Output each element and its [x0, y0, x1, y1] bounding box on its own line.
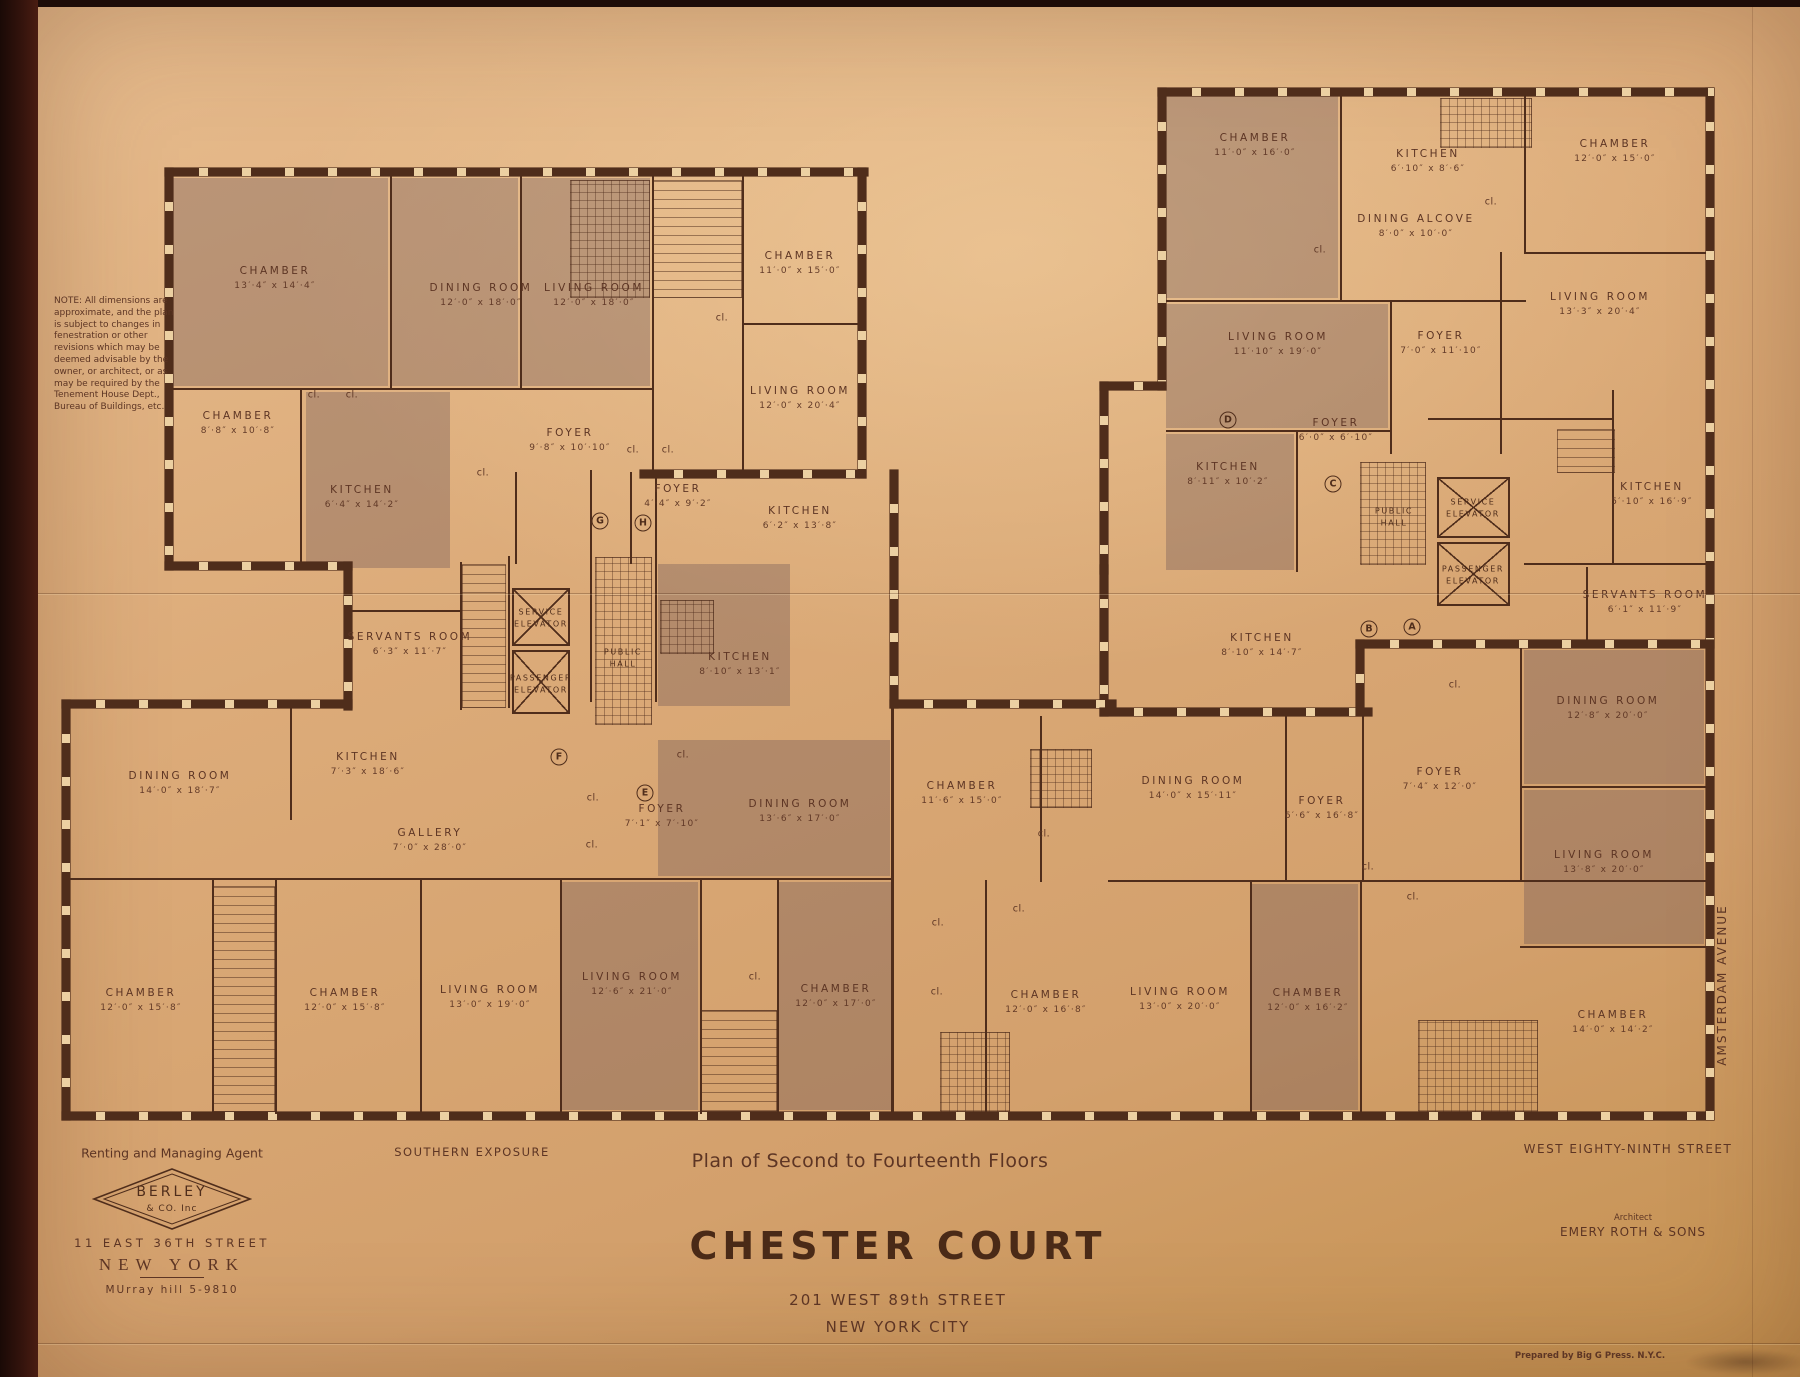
- stair-area: [1557, 429, 1615, 473]
- agent-address: 11 EAST 36TH STREET: [74, 1236, 270, 1250]
- exterior-wall: [62, 700, 70, 1120]
- interior-wall: [700, 878, 702, 1114]
- room-label: FOYER6′·6″ x 16′·8″: [1285, 795, 1359, 821]
- exterior-wall: [640, 470, 866, 478]
- room-label: DINING ALCOVE8′·0″ x 10′·0″: [1357, 213, 1475, 239]
- room-label: KITCHEN8′·11″ x 10′·2″: [1187, 461, 1268, 487]
- interior-wall: [1040, 716, 1042, 882]
- paper-smudge: [1686, 1349, 1800, 1375]
- stair-area: [652, 180, 742, 298]
- closet-label: cl.: [1314, 245, 1326, 256]
- tiled-area: [660, 600, 714, 654]
- agent-rule: [140, 1277, 204, 1278]
- closet-label: cl.: [1362, 862, 1374, 873]
- west-89th-street-label: WEST EIGHTY-NINTH STREET: [1524, 1142, 1733, 1156]
- berley-logo: BERLEY & CO. Inc: [92, 1168, 252, 1230]
- fold-crease: [1752, 7, 1753, 1377]
- interior-wall: [515, 472, 517, 564]
- room-label: SERVANTS ROOM6′·3″ x 11′·7″: [348, 631, 473, 657]
- fold-crease: [38, 593, 1800, 594]
- room-label: LIVING ROOM13′·8″ x 20′·0″: [1554, 849, 1654, 875]
- room-label: CHAMBER12′·0″ x 15′·8″: [304, 987, 385, 1013]
- room-label: LIVING ROOM12′·0″ x 20′·4″: [750, 385, 850, 411]
- core-label: PASSENGERELEVATOR: [510, 671, 572, 698]
- room-label: FOYER4′·4″ x 9′·2″: [644, 483, 711, 509]
- architect-heading: Architect: [1614, 1213, 1652, 1223]
- architect-name: EMERY ROTH & SONS: [1560, 1225, 1706, 1239]
- room-label: KITCHEN6′·2″ x 13′·8″: [763, 505, 837, 531]
- closet-label: cl.: [346, 390, 358, 401]
- agent-phone: MUrray hill 5-9810: [105, 1284, 238, 1296]
- room-label: KITCHEN8′·10″ x 13′·1″: [699, 651, 780, 677]
- interior-wall: [1524, 563, 1706, 565]
- stair-area: [700, 1010, 777, 1112]
- agent-city: NEW YORK: [99, 1255, 245, 1275]
- exterior-wall: [1100, 708, 1372, 716]
- interior-wall: [420, 878, 422, 1114]
- berley-logo-sub: & CO. Inc: [147, 1204, 198, 1214]
- unit-letter-badge: H: [635, 515, 652, 532]
- exterior-wall: [890, 470, 898, 708]
- unit-letter-badge: G: [592, 513, 609, 530]
- exterior-wall: [1356, 640, 1714, 648]
- room-label: KITCHEN7′·3″ x 18′·6″: [331, 751, 405, 777]
- room-label: LIVING ROOM12′·0″ x 18′·0″: [544, 282, 644, 308]
- building-city: NEW YORK CITY: [826, 1318, 971, 1336]
- closet-label: cl.: [931, 987, 943, 998]
- closet-label: cl.: [627, 445, 639, 456]
- core-label: PUBLICHALL: [604, 645, 642, 672]
- interior-wall: [1108, 880, 1714, 882]
- exterior-wall: [1100, 382, 1108, 574]
- core-label: SERVICEELEVATOR: [514, 605, 568, 632]
- closet-label: cl.: [1449, 680, 1461, 691]
- closet-label: cl.: [1485, 197, 1497, 208]
- interior-wall: [300, 390, 302, 564]
- closet-label: cl.: [1407, 892, 1419, 903]
- interior-wall: [1520, 946, 1714, 948]
- room-label: CHAMBER8′·8″ x 10′·8″: [201, 410, 275, 436]
- unit-letter-badge: F: [551, 749, 568, 766]
- interior-wall: [390, 176, 392, 388]
- room-label: LIVING ROOM13′·3″ x 20′·4″: [1550, 291, 1650, 317]
- room-label: CHAMBER11′·0″ x 15′·0″: [759, 250, 840, 276]
- shaded-room: [306, 392, 450, 568]
- agent-heading: Renting and Managing Agent: [81, 1146, 263, 1161]
- fold-crease: [38, 1343, 1800, 1344]
- shaded-room: [1166, 434, 1294, 570]
- interior-wall: [1524, 252, 1706, 254]
- interior-wall: [1520, 786, 1714, 788]
- room-label: FOYER6′·0″ x 6′·10″: [1299, 417, 1373, 443]
- exterior-wall: [1100, 382, 1166, 390]
- interior-wall: [1524, 96, 1526, 254]
- exterior-wall: [165, 168, 868, 176]
- exterior-wall: [890, 700, 1116, 708]
- interior-wall: [891, 708, 894, 1114]
- closet-label: cl.: [932, 918, 944, 929]
- exterior-wall: [1356, 640, 1364, 716]
- closet-label: cl.: [662, 445, 674, 456]
- scanned-floor-plan-photo: CHAMBER13′·4″ x 14′·4″DINING ROOM12′·0″ …: [0, 0, 1800, 1377]
- unit-letter-badge: B: [1361, 621, 1378, 638]
- room-label: DINING ROOM12′·0″ x 18′·0″: [430, 282, 533, 308]
- interior-wall: [985, 880, 987, 1114]
- room-label: CHAMBER14′·0″ x 14′·2″: [1572, 1009, 1653, 1035]
- interior-wall: [1520, 648, 1522, 882]
- interior-wall: [1612, 390, 1614, 565]
- room-label: FOYER7′·1″ x 7′·10″: [625, 803, 699, 829]
- stair-area: [212, 886, 275, 1112]
- interior-wall: [742, 323, 860, 325]
- interior-wall: [1250, 882, 1252, 1114]
- exterior-wall: [1100, 565, 1108, 716]
- unit-letter-badge: A: [1404, 619, 1421, 636]
- closet-label: cl.: [716, 313, 728, 324]
- southern-exposure-label: SOUTHERN EXPOSURE: [394, 1145, 550, 1159]
- closet-label: cl.: [1013, 904, 1025, 915]
- building-name: CHESTER COURT: [690, 1224, 1107, 1268]
- unit-letter-badge: C: [1325, 476, 1342, 493]
- interior-wall: [1296, 432, 1298, 572]
- tiled-area: [570, 180, 650, 298]
- closet-label: cl.: [677, 750, 689, 761]
- closet-label: cl.: [749, 972, 761, 983]
- room-label: DINING ROOM13′·6″ x 17′·0″: [749, 798, 852, 824]
- interior-wall: [275, 878, 277, 1114]
- closet-label: cl.: [477, 468, 489, 479]
- room-label: KITCHEN6′·10″ x 8′·6″: [1391, 148, 1465, 174]
- room-label: CHAMBER12′·0″ x 15′·8″: [100, 987, 181, 1013]
- core-label: PUBLICHALL: [1375, 504, 1413, 531]
- room-label: CHAMBER12′·0″ x 15′·0″: [1574, 138, 1655, 164]
- room-label: CHAMBER12′·0″ x 16′·8″: [1005, 989, 1086, 1015]
- interior-wall: [1428, 418, 1614, 420]
- room-label: CHAMBER12′·0″ x 16′·2″: [1267, 987, 1348, 1013]
- unit-letter-badge: E: [637, 785, 654, 802]
- room-label: KITCHEN5′·10″ x 16′·9″: [1611, 481, 1692, 507]
- interior-wall: [590, 470, 592, 702]
- amsterdam-avenue-label: AMSTERDAM AVENUE: [1715, 904, 1729, 1065]
- shaded-room: [1166, 304, 1388, 428]
- interior-wall: [212, 878, 214, 1114]
- core-label: SERVICEELEVATOR: [1446, 495, 1500, 522]
- exterior-wall: [1158, 88, 1714, 96]
- exterior-wall: [62, 1112, 1714, 1120]
- room-label: CHAMBER12′·0″ x 17′·0″: [795, 983, 876, 1009]
- shaded-room: [1166, 96, 1338, 298]
- tiled-area: [940, 1032, 1010, 1112]
- room-label: FOYER9′·8″ x 10′·10″: [529, 427, 610, 453]
- closet-label: cl.: [586, 840, 598, 851]
- exterior-wall: [1158, 88, 1166, 390]
- closet-label: cl.: [1038, 829, 1050, 840]
- interior-wall: [1166, 300, 1526, 302]
- interior-wall: [1340, 96, 1342, 302]
- room-label: CHAMBER11′·6″ x 15′·0″: [921, 780, 1002, 806]
- exterior-wall: [165, 562, 352, 570]
- interior-wall: [630, 472, 632, 564]
- plan-title: Plan of Second to Fourteenth Floors: [692, 1150, 1049, 1172]
- interior-wall: [560, 878, 562, 1114]
- interior-wall: [777, 878, 779, 1114]
- unit-letter-badge: D: [1220, 412, 1237, 429]
- plan-note: NOTE: All dimensions are approximate, an…: [54, 296, 180, 414]
- room-label: KITCHEN6′·4″ x 14′·2″: [325, 484, 399, 510]
- room-label: CHAMBER11′·0″ x 16′·0″: [1214, 132, 1295, 158]
- room-label: DINING ROOM12′·8″ x 20′·0″: [1557, 695, 1660, 721]
- closet-label: cl.: [587, 793, 599, 804]
- printer-credit: Prepared by Big G Press. N.Y.C.: [1515, 1351, 1665, 1361]
- interior-wall: [62, 878, 892, 880]
- interior-wall: [652, 176, 654, 470]
- room-label: DINING ROOM14′·0″ x 18′·7″: [129, 770, 232, 796]
- interior-wall: [290, 708, 292, 820]
- tiled-area: [1418, 1020, 1538, 1112]
- room-label: LIVING ROOM13′·0″ x 20′·0″: [1130, 986, 1230, 1012]
- room-label: GALLERY7′·0″ x 28′·0″: [393, 827, 467, 853]
- room-label: LIVING ROOM13′·0″ x 19′·0″: [440, 984, 540, 1010]
- interior-wall: [1362, 716, 1364, 882]
- tiled-area: [1440, 98, 1532, 148]
- building-address: 201 WEST 89th STREET: [789, 1291, 1007, 1309]
- interior-wall: [1360, 882, 1362, 1114]
- interior-wall: [1500, 252, 1502, 454]
- interior-wall: [350, 610, 462, 612]
- interior-wall: [165, 388, 654, 390]
- room-label: LIVING ROOM11′·10″ x 19′·0″: [1228, 331, 1328, 357]
- room-label: KITCHEN8′·10″ x 14′·7″: [1221, 632, 1302, 658]
- room-label: FOYER7′·4″ x 12′·0″: [1403, 766, 1477, 792]
- room-label: FOYER7′·0″ x 11′·10″: [1400, 330, 1481, 356]
- room-label: LIVING ROOM12′·6″ x 21′·0″: [582, 971, 682, 997]
- berley-logo-name: BERLEY: [136, 1184, 207, 1200]
- core-label: PASSENGERELEVATOR: [1442, 562, 1504, 589]
- tiled-area: [595, 557, 652, 725]
- room-label: CHAMBER13′·4″ x 14′·4″: [234, 265, 315, 291]
- exterior-wall: [62, 700, 352, 708]
- closet-label: cl.: [308, 390, 320, 401]
- room-label: DINING ROOM14′·0″ x 15′·11″: [1142, 775, 1245, 801]
